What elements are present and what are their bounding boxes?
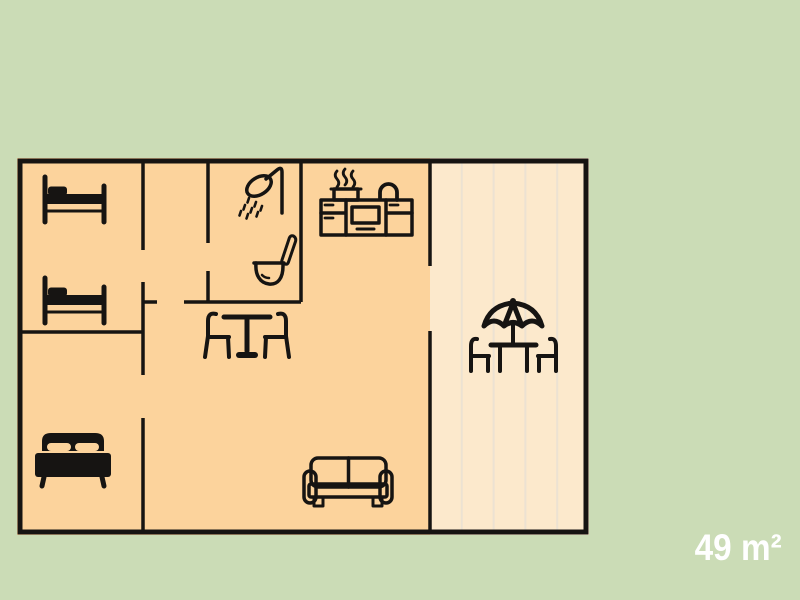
floorplan-page: Parkchalet | 4 pers <box>0 0 800 600</box>
floorplan-drawing <box>0 0 800 600</box>
area-label: 49 m² <box>695 527 782 569</box>
